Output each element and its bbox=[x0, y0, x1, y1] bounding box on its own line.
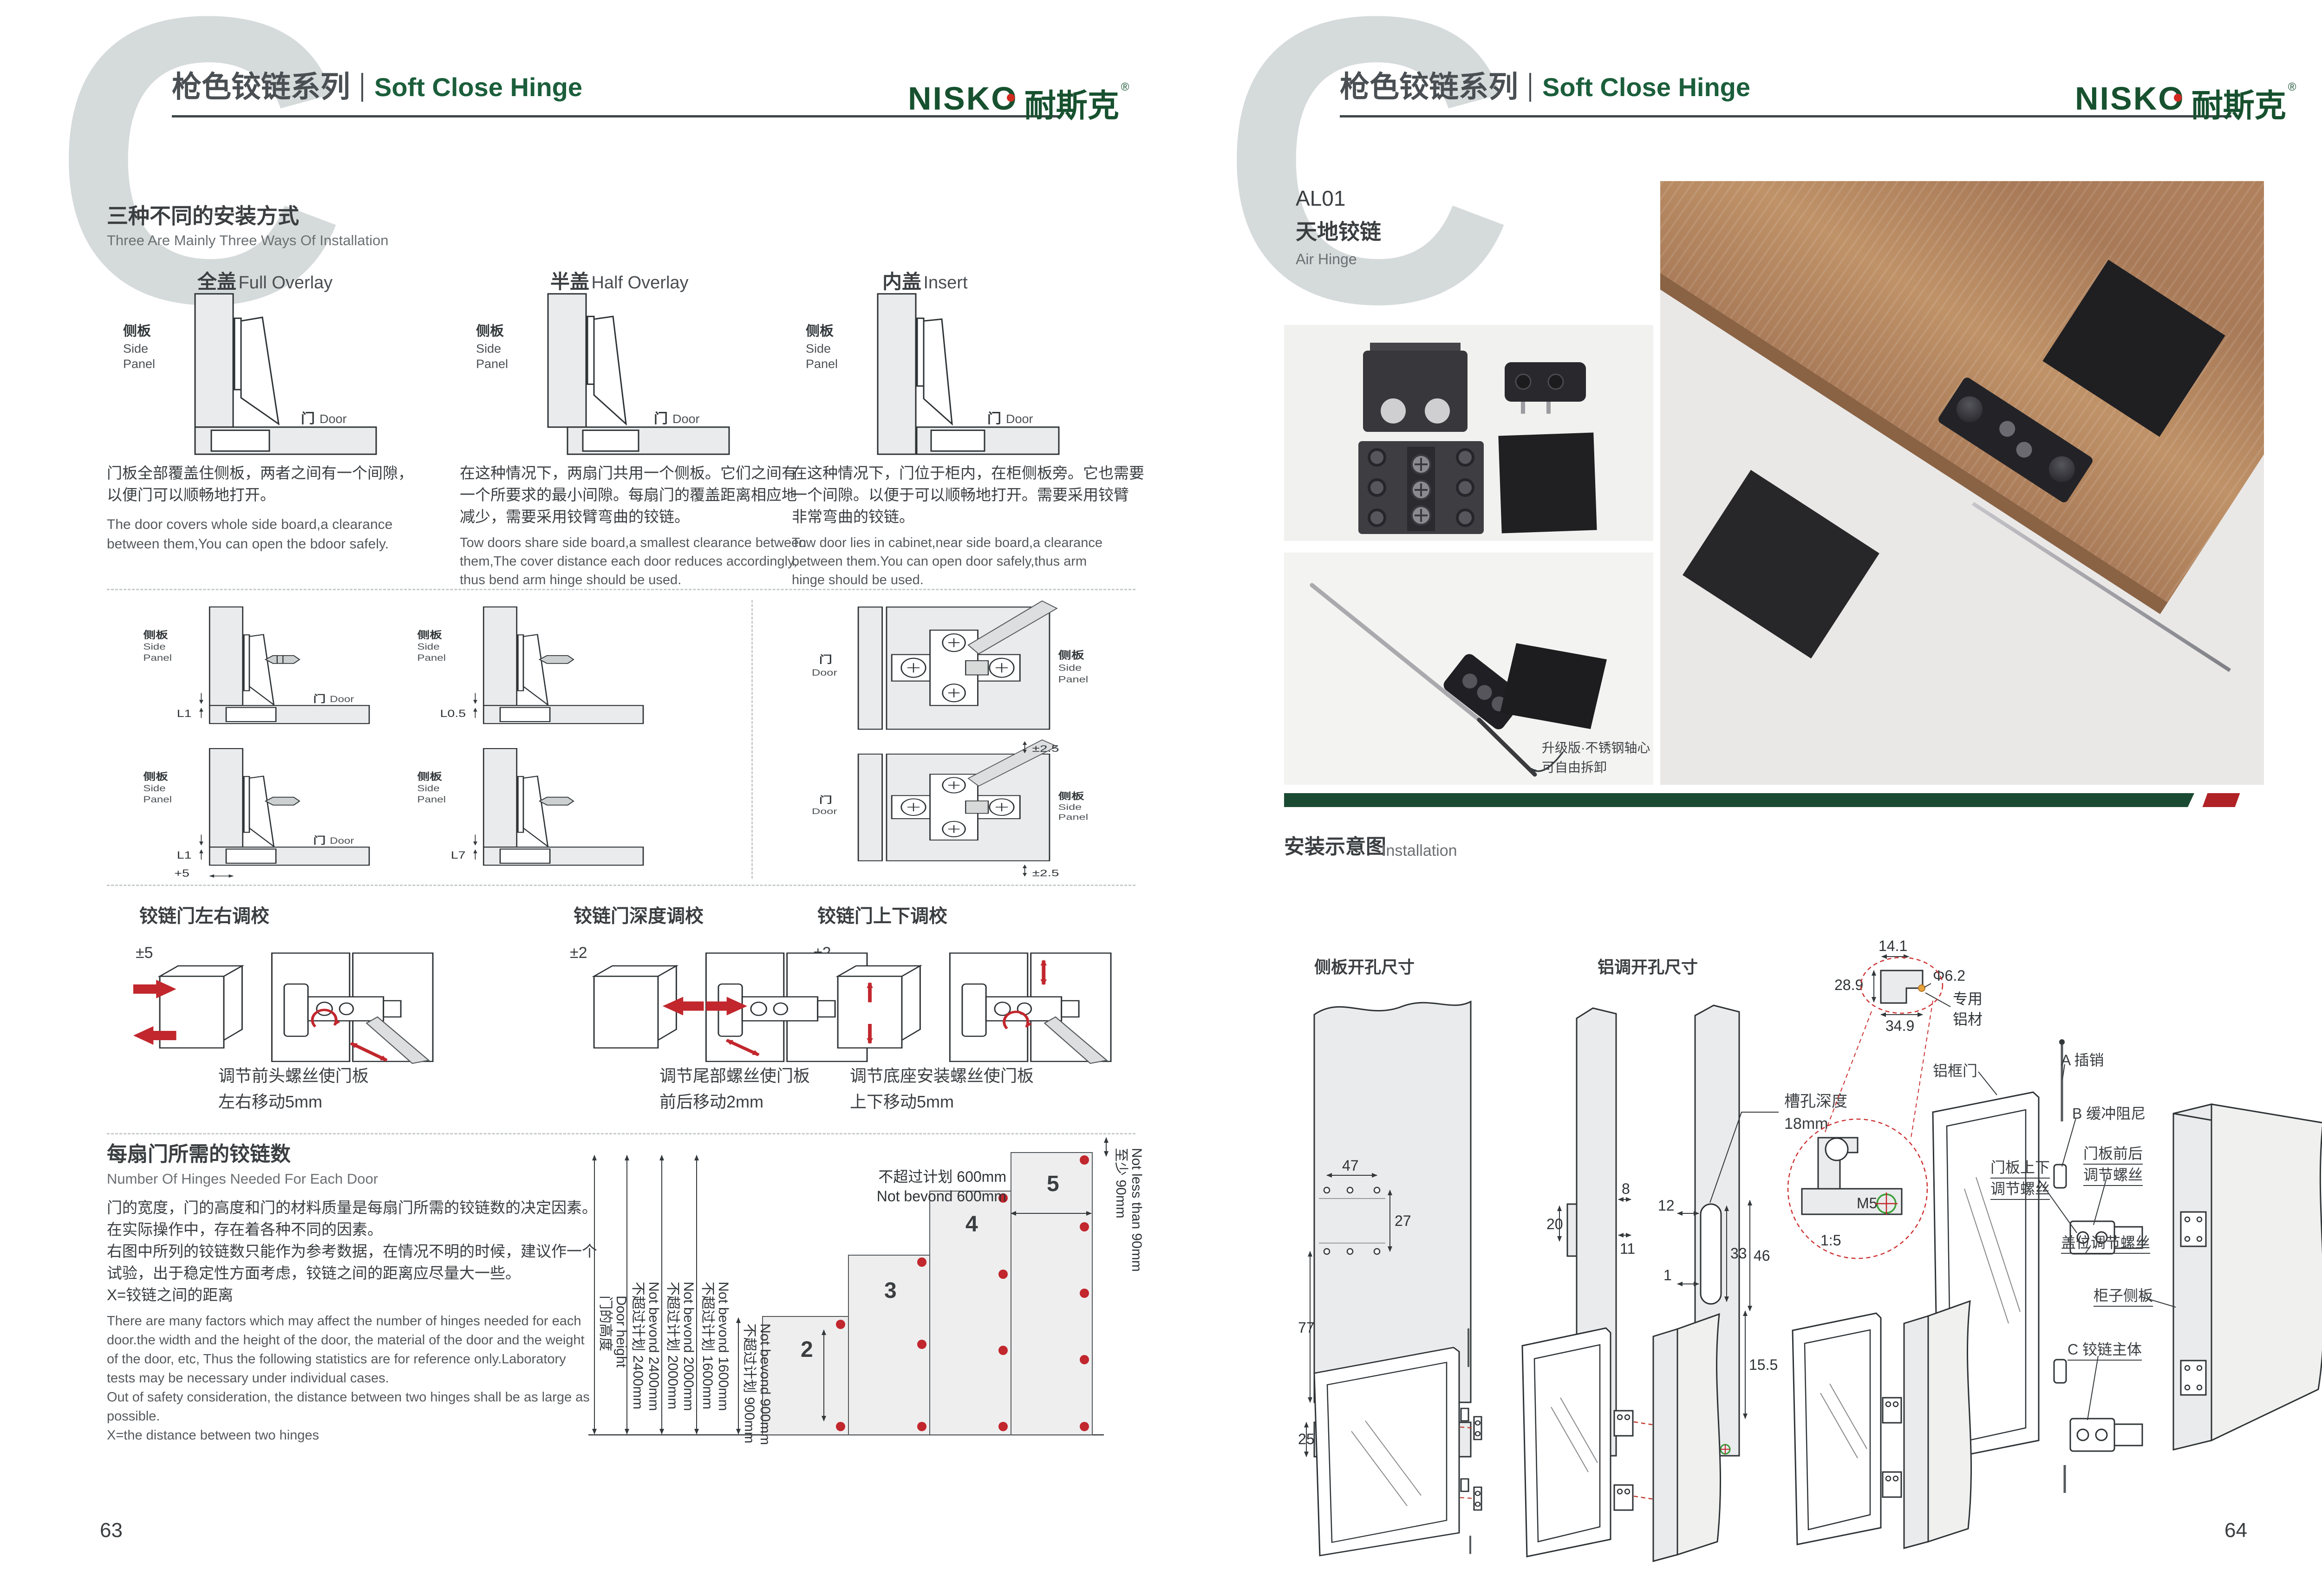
adj1-title: 铰链门左右调校 bbox=[139, 905, 269, 927]
product-name-en: Air Hinge bbox=[1296, 251, 1357, 268]
product-photo-rod: 升级版·不锈钢轴心 可自由拆卸 bbox=[1284, 553, 1653, 785]
label-cabinet-side: 柜子侧板 bbox=[2094, 1287, 2153, 1307]
svg-text:侧板: 侧板 bbox=[143, 629, 168, 641]
dim-L1b: L1 bbox=[177, 850, 192, 861]
svg-text:侧板: 侧板 bbox=[417, 629, 442, 641]
dim-L7: L7 bbox=[451, 850, 466, 861]
svg-text:侧板: 侧板 bbox=[143, 771, 168, 782]
svg-text:Side: Side bbox=[806, 342, 831, 356]
hc-cn-5: X=铰链之间的距离 bbox=[107, 1286, 233, 1304]
way1-en-2: between them,You can open the bdoor safe… bbox=[107, 536, 389, 552]
alu-label-1: 专用 bbox=[1953, 990, 1983, 1007]
diagram-adjust-ud bbox=[810, 947, 1112, 1063]
hc-en-3: of the door, etc, Thus the following sta… bbox=[107, 1351, 566, 1367]
brand-logo-right: NISKO 耐斯克 ® bbox=[2075, 80, 2296, 126]
hc-title-en: Number Of Hinges Needed For Each Door bbox=[107, 1171, 378, 1188]
svg-text:侧板: 侧板 bbox=[806, 324, 834, 339]
svg-text:Panel: Panel bbox=[1058, 813, 1089, 822]
divider-1 bbox=[107, 589, 1135, 590]
exploded-hinge-2 bbox=[2070, 1419, 2142, 1451]
axis-2400-cn: 不超过计划 2400mm bbox=[630, 1282, 646, 1409]
dim-289: 28.9 bbox=[1834, 977, 1863, 993]
way1-cn-1: 门板全部覆盖住侧板，两者之间有一个间隙， bbox=[107, 464, 413, 482]
dim-dia62: Φ6.2 bbox=[1933, 967, 1965, 984]
label-ud-screw-1: 门板上下 bbox=[1990, 1159, 2050, 1179]
axis-door-height-cn: 门的高度 bbox=[598, 1296, 613, 1351]
hc-cn-4: 试验，出于稳定性方面考虑，铰链之间的距离应尽量大一些。 bbox=[107, 1264, 521, 1283]
accent-bar-red bbox=[2203, 793, 2240, 807]
svg-text:Door: Door bbox=[330, 836, 354, 846]
catalog-spread: C 枪色铰链系列 Soft Close Hinge NISKO 耐斯克 ® 三种… bbox=[0, 0, 2322, 1596]
dim-12: 12 bbox=[1658, 1197, 1675, 1214]
way3-cn-1: 在这种情况下，门位于柜内，在柜侧板旁。它也需要 bbox=[792, 464, 1144, 482]
way3-en-1: Tow door lies in cabinet,near side board… bbox=[792, 535, 1102, 551]
label-c-body: C 铰链主体 bbox=[2068, 1341, 2142, 1361]
product-name-cn: 天地铰链 bbox=[1296, 219, 1381, 244]
dim-47: 47 bbox=[1342, 1157, 1359, 1174]
way2-en-3: thus bend arm hinge should be used. bbox=[460, 572, 681, 588]
diagram-adjust-lr bbox=[132, 947, 434, 1063]
diagram-offset-L1b: 侧板 Side Panel 门 Door L1 +5 bbox=[137, 745, 369, 880]
width-600-en: Not bevond 600mm bbox=[877, 1188, 1006, 1205]
svg-text:Panel: Panel bbox=[806, 357, 838, 371]
svg-text:Side: Side bbox=[1058, 802, 1082, 812]
assembly-stage-3 bbox=[1765, 1286, 1983, 1556]
adj3-cap1: 调节底座安装螺丝使门板 bbox=[850, 1066, 1034, 1086]
divider-vertical bbox=[751, 600, 753, 879]
axis-2400-en: Not bevond 2400mm bbox=[646, 1282, 661, 1411]
scale-label: 1:5 bbox=[1820, 1232, 1841, 1249]
adj2-cap1: 调节尾部螺丝使门板 bbox=[659, 1066, 810, 1086]
dim-1: 1 bbox=[1663, 1267, 1672, 1283]
bar-5: 5 bbox=[1047, 1172, 1059, 1196]
label-fb-screw-2: 调节螺丝 bbox=[2083, 1166, 2143, 1186]
side-hole-title: 侧板开孔尺寸 bbox=[1314, 958, 1415, 977]
svg-text:门: 门 bbox=[313, 835, 326, 847]
min-90-en: Not less than 90mm bbox=[1129, 1148, 1144, 1272]
svg-text:Panel: Panel bbox=[143, 795, 172, 805]
svg-text:Side: Side bbox=[1058, 662, 1082, 673]
hc-en-2: door.the width and the height of the doo… bbox=[107, 1332, 585, 1348]
page-letter-right: C bbox=[1220, 0, 1515, 365]
axis-900-en: Not bevond 900mm bbox=[757, 1323, 773, 1445]
svg-text:Panel: Panel bbox=[417, 795, 446, 805]
diagram-offset-L7: 侧板 Side Panel L7 bbox=[411, 745, 643, 880]
dim-27: 27 bbox=[1395, 1212, 1411, 1229]
label-b-damper: B 缓冲阻尼 bbox=[2072, 1105, 2146, 1123]
ways-title-en: Three Are Mainly Three Ways Of Installat… bbox=[107, 232, 388, 249]
svg-text:Door: Door bbox=[812, 667, 837, 678]
ways-title-cn: 三种不同的安装方式 bbox=[107, 203, 299, 228]
assembly-stage-2 bbox=[1514, 1300, 1732, 1560]
svg-text:侧板: 侧板 bbox=[1058, 649, 1085, 661]
svg-text:Panel: Panel bbox=[417, 653, 446, 663]
axis-900-cn: 不超过计划 900mm bbox=[742, 1323, 757, 1443]
svg-text:Panel: Panel bbox=[1058, 674, 1089, 684]
svg-text:Panel: Panel bbox=[123, 357, 155, 371]
product-code: AL01 bbox=[1296, 186, 1345, 211]
svg-text:门: 门 bbox=[987, 411, 1001, 426]
logo-red-dot-icon bbox=[1007, 94, 1015, 102]
dim-11: 11 bbox=[1620, 1240, 1635, 1257]
way3-en-3: hinge should be used. bbox=[792, 572, 924, 588]
svg-text:门: 门 bbox=[819, 795, 832, 805]
svg-text:Panel: Panel bbox=[143, 653, 172, 663]
side-panel-label: 侧板 bbox=[123, 324, 151, 339]
dim-m5-big: M5 bbox=[1857, 1195, 1877, 1212]
installation-title-cn: 安装示意图 bbox=[1284, 835, 1386, 859]
svg-text:门: 门 bbox=[654, 411, 668, 426]
way1-en-1: The door covers whole side board,a clear… bbox=[107, 516, 392, 533]
svg-text:Side: Side bbox=[143, 783, 165, 793]
min-90-cn: 至少 90mm bbox=[1113, 1148, 1128, 1218]
photo-note-1: 升级版·不锈钢轴心 bbox=[1542, 741, 1650, 755]
axis-1600-en: Not bevond 1600mm bbox=[716, 1282, 731, 1411]
logo-cn: 耐斯克 bbox=[1024, 80, 1119, 126]
label-ud-screw-2: 调节螺丝 bbox=[1990, 1180, 2050, 1200]
svg-text:Door: Door bbox=[672, 412, 700, 426]
dim-8: 8 bbox=[1622, 1180, 1630, 1197]
svg-text:Door: Door bbox=[330, 694, 354, 704]
door-label: 门 bbox=[301, 411, 315, 426]
floor-plate bbox=[1683, 470, 1879, 658]
svg-text:Door: Door bbox=[1006, 412, 1033, 426]
logo-text: NISKO bbox=[908, 80, 1018, 117]
adj3-cap2: 上下移动5mm bbox=[850, 1092, 954, 1112]
hc-title-cn: 每扇门所需的铰链数 bbox=[107, 1142, 291, 1166]
dim-L1: L1 bbox=[177, 708, 192, 720]
photo-note-2: 可自由拆卸 bbox=[1542, 760, 1607, 775]
hc-cn-1: 门的宽度，门的高度和门的材料质量是每扇门所需的铰链数的决定因素。 bbox=[107, 1199, 597, 1217]
dim-pm25-bottom: ±2.5 bbox=[1032, 868, 1059, 878]
hc-en-4: tests may be necessary under individual … bbox=[107, 1370, 389, 1386]
axis-door-height-en: Door height bbox=[613, 1296, 629, 1368]
bar-4: 4 bbox=[965, 1212, 978, 1237]
page-header-right: 枪色铰链系列 Soft Close Hinge bbox=[1340, 70, 1750, 105]
axis-1600-cn: 不超过计划 1600mm bbox=[700, 1282, 715, 1409]
diagram-full-overlay: 侧板 Side Panel 门 Door bbox=[116, 290, 376, 457]
svg-text:侧板: 侧板 bbox=[476, 324, 504, 339]
svg-text:门: 门 bbox=[313, 693, 326, 705]
page-number-right: 64 bbox=[2224, 1518, 2247, 1543]
base-plate-screws bbox=[1412, 455, 1430, 525]
installation-title-en: Installation bbox=[1382, 841, 1457, 860]
axis-2000-en: Not bevond 2000mm bbox=[681, 1282, 696, 1411]
assembly-stage-1 bbox=[1300, 1323, 1486, 1556]
diagram-plate-1: 门 Door 侧板 Side Panel bbox=[778, 604, 1117, 736]
dim-33: 33 bbox=[1730, 1245, 1747, 1262]
product-photo-parts bbox=[1284, 325, 1653, 541]
hc-en-7: X=the distance between two hinges bbox=[107, 1427, 319, 1443]
dim-plus5: +5 bbox=[174, 868, 189, 879]
hc-cn-2: 在实际操作中，存在着各种不同的因素。 bbox=[107, 1221, 383, 1239]
way1-cn-2: 以便门可以顺畅地打开。 bbox=[107, 486, 275, 504]
way2-cn-2: 一个所要求的最小间隙。每扇门的覆盖距离相应地 bbox=[460, 486, 797, 504]
divider-3 bbox=[107, 1133, 1135, 1134]
adj3-title: 铰链门上下调校 bbox=[817, 905, 947, 927]
way2-en-1: Tow doors share side board,a smallest cl… bbox=[460, 535, 806, 551]
bar-3: 3 bbox=[884, 1278, 897, 1303]
adj1-cap2: 左右移动5mm bbox=[218, 1092, 322, 1112]
dim-20: 20 bbox=[1546, 1216, 1563, 1232]
adj2-cap2: 前后移动2mm bbox=[659, 1092, 763, 1112]
hc-en-1: There are many factors which may affect … bbox=[107, 1313, 581, 1329]
way3-cn-2: 一个间隙。以便于可以顺畅地打开。需要采用铰臂 bbox=[792, 486, 1129, 504]
adj1-cap1: 调节前头螺丝使门板 bbox=[218, 1066, 369, 1086]
way2-cn-1: 在这种情况下，两扇门共用一个侧板。它们之间有 bbox=[460, 464, 797, 482]
way2-en-2: them,The cover distance each door reduce… bbox=[460, 554, 797, 569]
way2-cn-3: 减少，需要采用铰臂弯曲的铰链。 bbox=[460, 508, 690, 526]
svg-text:Door: Door bbox=[812, 807, 837, 816]
diagram-plate-2: 门 Door 侧板 Side Panel ±2.5 ±2.5 bbox=[778, 739, 1117, 879]
width-600-cn: 不超过计划 600mm bbox=[878, 1168, 1006, 1185]
dim-141: 14.1 bbox=[1878, 938, 1907, 954]
dim-46: 46 bbox=[1754, 1247, 1770, 1264]
svg-text:Door: Door bbox=[320, 412, 347, 426]
diagram-offset-L1: 侧板 Side Panel 门 Door L1 bbox=[137, 604, 369, 738]
page-number-left: 63 bbox=[100, 1518, 123, 1543]
diagram-offset-L05: 侧板 Side Panel L0.5 bbox=[411, 604, 643, 738]
alu-label-2: 铝材 bbox=[1953, 1011, 1983, 1028]
way3-cn-3: 非常弯曲的铰链。 bbox=[792, 508, 914, 526]
bar-2: 2 bbox=[801, 1337, 813, 1362]
svg-text:门: 门 bbox=[819, 654, 832, 665]
dim-L05: L0.5 bbox=[440, 708, 466, 720]
axis-2000-cn: 不超过计划 2000mm bbox=[665, 1282, 680, 1409]
diagram-insert: 侧板 Side Panel 门 Door bbox=[799, 290, 1059, 457]
product-photo-board bbox=[1660, 181, 2264, 785]
svg-text:Side: Side bbox=[417, 783, 439, 793]
svg-text:侧板: 侧板 bbox=[1058, 791, 1085, 801]
hc-en-5: Out of safety consideration, the distanc… bbox=[107, 1389, 590, 1405]
svg-text:Side: Side bbox=[123, 342, 148, 356]
label-cover-screw: 盖位调节螺丝 bbox=[2061, 1234, 2150, 1254]
hinge-count-chart: 2 3 4 5 门的高度 Door height 不超过计划 2400mm No… bbox=[586, 1142, 1156, 1467]
header-divider bbox=[361, 73, 363, 102]
dim-pm25-top: ±2.5 bbox=[1032, 743, 1059, 754]
way3-en-2: between them.You can open door safely,th… bbox=[792, 554, 1087, 569]
dim-349: 34.9 bbox=[1885, 1017, 1914, 1034]
page-header-left: 枪色铰链系列 Soft Close Hinge bbox=[172, 70, 582, 105]
hc-en-6: possible. bbox=[107, 1408, 160, 1424]
brand-logo-left: NISKO 耐斯克 ® bbox=[908, 80, 1129, 126]
label-a-pin: A 插销 bbox=[2061, 1052, 2104, 1069]
diagram-half-overlay: 侧板 Side Panel 门 Door bbox=[469, 290, 729, 457]
series-title-en: Soft Close Hinge bbox=[374, 72, 582, 103]
divider-2 bbox=[107, 885, 1135, 886]
accent-bar-green bbox=[1284, 793, 2194, 807]
hc-cn-3: 右图中所列的铰链数只能作为参考数据，在情况不明的时候，建议作一个 bbox=[107, 1243, 597, 1261]
svg-text:侧板: 侧板 bbox=[417, 771, 442, 782]
svg-text:Panel: Panel bbox=[476, 357, 508, 371]
logo-reg: ® bbox=[1121, 81, 1129, 94]
label-fb-screw-1: 门板前后 bbox=[2083, 1145, 2143, 1165]
svg-text:Side: Side bbox=[476, 342, 501, 356]
svg-text:Side: Side bbox=[143, 641, 165, 651]
svg-text:Side: Side bbox=[417, 641, 439, 651]
series-title-cn: 枪色铰链系列 bbox=[172, 70, 350, 105]
adj2-title: 铰链门深度调校 bbox=[574, 905, 704, 927]
label-alu-door: 铝框门 bbox=[1933, 1062, 1977, 1080]
alu-hole-title: 铝调开孔尺寸 bbox=[1598, 958, 1698, 977]
